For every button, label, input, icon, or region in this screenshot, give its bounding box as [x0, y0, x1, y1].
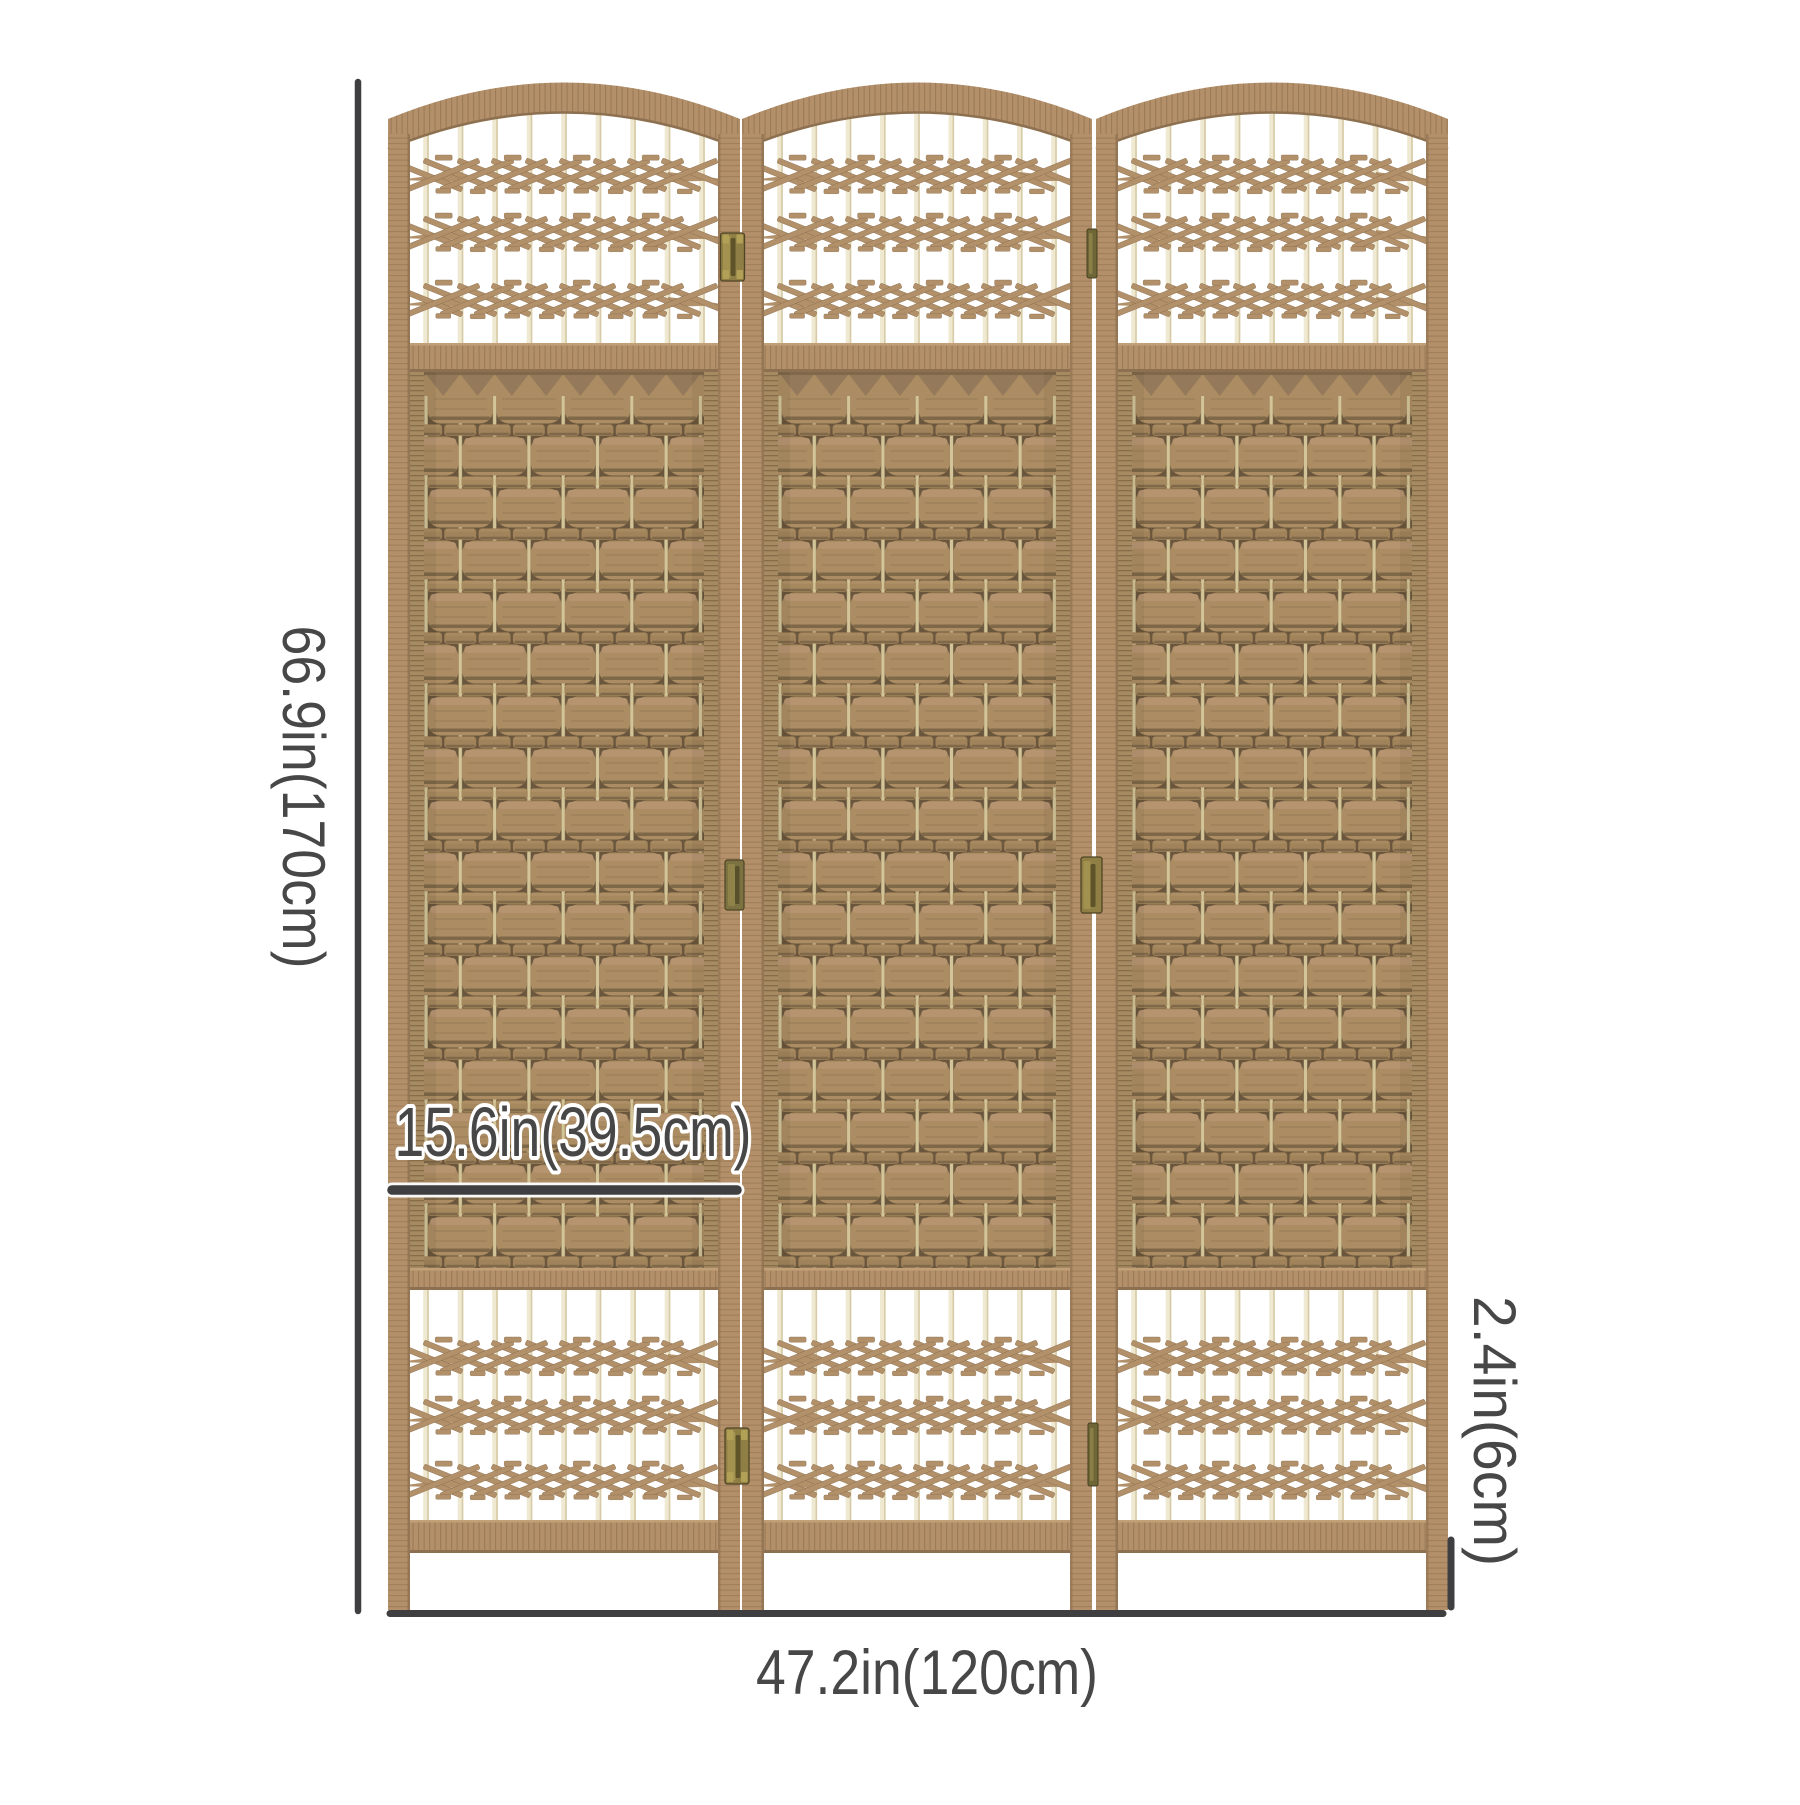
svg-text:47.2in(120cm): 47.2in(120cm) [756, 1638, 1098, 1708]
svg-text:2.4in(6cm): 2.4in(6cm) [1461, 1296, 1528, 1566]
svg-text:15.6in(39.5cm): 15.6in(39.5cm) [395, 1093, 752, 1171]
svg-text:66.9in(170cm): 66.9in(170cm) [270, 626, 337, 969]
